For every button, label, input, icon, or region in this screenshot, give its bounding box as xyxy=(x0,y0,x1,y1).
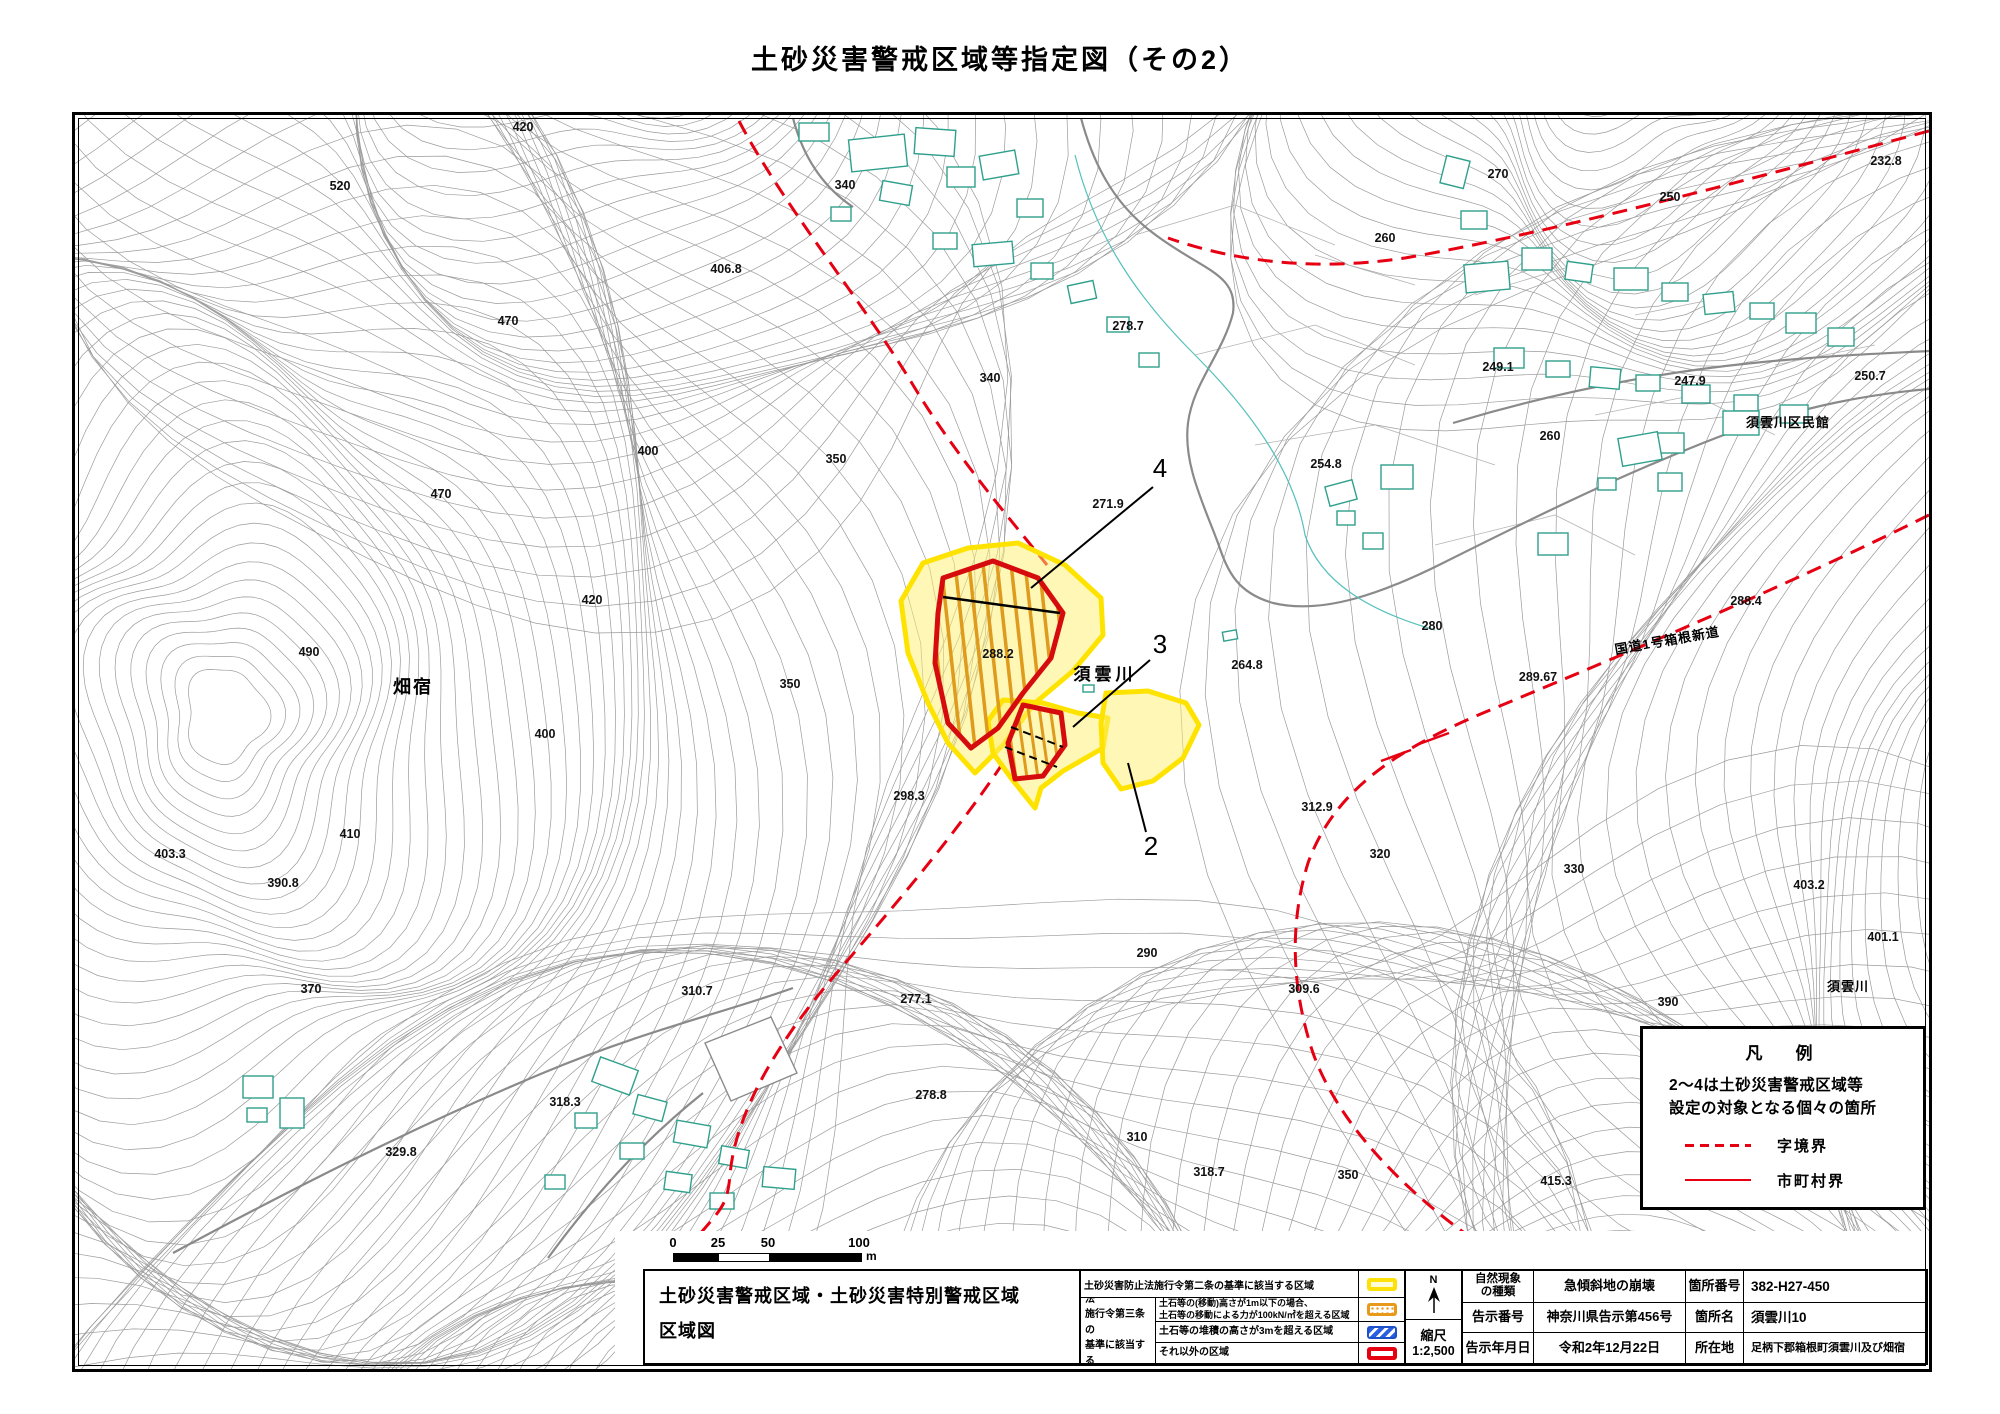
zone-legend-row4-label: それ以外の区域 xyxy=(1155,1342,1358,1363)
elevation-label: 330 xyxy=(1564,862,1585,876)
info-header-site-name: 箇所名 xyxy=(1685,1302,1743,1333)
elevation-label: 232.8 xyxy=(1870,154,1901,168)
elevation-label: 329.8 xyxy=(385,1145,416,1159)
info-value-phenomenon: 急傾斜地の崩壊 xyxy=(1533,1271,1685,1302)
map-legend-title: 凡 例 xyxy=(1643,1039,1923,1064)
scalebar-segment xyxy=(719,1254,769,1261)
zone-legend-group-label: 土砂災害防止法 施行令第三条の 基準に該当する 区域 xyxy=(1081,1297,1155,1363)
elevation-label: 320 xyxy=(1370,847,1391,861)
elevation-label: 250.7 xyxy=(1854,369,1885,383)
orange-hatch-swatch xyxy=(1367,1303,1397,1316)
elevation-label: 250 xyxy=(1660,190,1681,204)
elevation-label: 288.4 xyxy=(1730,594,1761,608)
compass-label: N xyxy=(1430,1275,1438,1286)
zone-legend-row1-label: 土砂災害防止法施行令第二条の基準に該当する区域 xyxy=(1081,1271,1358,1297)
place-label: 須雲川区民館 xyxy=(1745,415,1830,430)
scale-value: 1:2,500 xyxy=(1412,1344,1454,1358)
sheet-title-line1: 土砂災害警戒区域・土砂災害特別警戒区域 xyxy=(659,1279,1065,1314)
elevation-label: 260 xyxy=(1540,429,1561,443)
elevation-label: 390 xyxy=(1658,995,1679,1009)
legend-item-azakyoukai: 字境界 xyxy=(1685,1135,1923,1156)
info-table: 自然現象の種類 急傾斜地の崩壊 箇所番号 382-H27-450 告示番号 神奈… xyxy=(1461,1269,1928,1365)
elevation-label: 309.6 xyxy=(1288,982,1319,996)
elevation-label: 298.3 xyxy=(893,789,924,803)
place-label: 須雲川 xyxy=(1074,665,1137,684)
yellow-zone-swatch xyxy=(1367,1278,1397,1291)
place-label: 須雲川 xyxy=(1826,979,1869,994)
north-arrow-icon xyxy=(1424,1286,1444,1316)
elevation-label: 318.3 xyxy=(549,1095,580,1109)
zone-legend-row3-swatch xyxy=(1358,1321,1404,1342)
zone-legend-row4-swatch xyxy=(1358,1342,1404,1363)
zone-legend-row2-label: 土石等の(移動)高さが1m以下の場合、 土石等の移動による力が100kN/㎡を超… xyxy=(1155,1297,1358,1321)
zone-number-label: 4 xyxy=(1153,453,1167,483)
zone-legend-row1-swatch xyxy=(1358,1271,1404,1297)
zone-number-label: 3 xyxy=(1153,629,1167,659)
elevation-label: 420 xyxy=(582,593,603,607)
elevation-label: 260 xyxy=(1375,231,1396,245)
scalebar-segment xyxy=(674,1254,719,1261)
scale-cell: 縮尺 1:2,500 xyxy=(1406,1319,1461,1363)
elevation-label: 350 xyxy=(780,677,801,691)
info-header-notice-number: 告示番号 xyxy=(1463,1302,1533,1333)
zone-legend-row3-label: 土石等の堆積の高さが3mを超える区域 xyxy=(1155,1321,1358,1342)
elevation-label: 370 xyxy=(301,982,322,996)
info-value-location: 足柄下郡箱根町須雲川及び畑宿 xyxy=(1743,1332,1926,1363)
elevation-label: 247.9 xyxy=(1674,374,1705,388)
elevation-label: 312.9 xyxy=(1301,800,1332,814)
red-outline-swatch xyxy=(1367,1347,1397,1360)
legend-item-shichosonkai: 市町村界 xyxy=(1685,1170,1923,1191)
scalebar-tick: 50 xyxy=(748,1235,788,1250)
page-title: 土砂災害警戒区域等指定図（その2） xyxy=(0,38,2000,77)
elevation-label: 277.1 xyxy=(900,992,931,1006)
elevation-label: 350 xyxy=(826,452,847,466)
elevation-label: 270 xyxy=(1488,167,1509,181)
place-label: 畑宿 xyxy=(393,676,433,697)
compass: N xyxy=(1406,1271,1461,1319)
elevation-label: 400 xyxy=(535,727,556,741)
info-value-site-name: 須雲川10 xyxy=(1743,1302,1926,1333)
scalebar-tick: 0 xyxy=(653,1235,693,1250)
elevation-label: 410 xyxy=(340,827,361,841)
elevation-label: 254.8 xyxy=(1310,457,1341,471)
elevation-label: 278.8 xyxy=(915,1088,946,1102)
elevation-label: 415.3 xyxy=(1540,1174,1571,1188)
elevation-label: 290 xyxy=(1137,946,1158,960)
elevation-label: 280 xyxy=(1422,619,1443,633)
elevation-label: 420 xyxy=(513,120,534,134)
info-header-location: 所在地 xyxy=(1685,1332,1743,1363)
info-header-notice-date: 告示年月日 xyxy=(1463,1332,1533,1363)
elevation-label: 289.67 xyxy=(1519,670,1557,684)
info-value-site-number: 382-H27-450 xyxy=(1743,1271,1926,1302)
scalebar-unit: m xyxy=(866,1249,877,1263)
elevation-label: 288.2 xyxy=(982,647,1013,661)
scalebar xyxy=(673,1253,862,1262)
elevation-label: 310.7 xyxy=(681,984,712,998)
blue-hatch-swatch xyxy=(1367,1326,1397,1339)
zone-legend-table: 土砂災害防止法施行令第二条の基準に該当する区域 土砂災害防止法 施行令第三条の … xyxy=(1079,1269,1406,1365)
compass-scale-box: N 縮尺 1:2,500 xyxy=(1404,1269,1463,1365)
elevation-label: 340 xyxy=(980,371,1001,385)
elevation-label: 350 xyxy=(1338,1168,1359,1182)
elevation-label: 310 xyxy=(1127,1130,1148,1144)
elevation-label: 403.2 xyxy=(1793,878,1824,892)
elevation-label: 470 xyxy=(431,487,452,501)
elevation-label: 264.8 xyxy=(1231,658,1262,672)
info-value-notice-date: 令和2年12月22日 xyxy=(1533,1332,1685,1363)
map-legend-note: 2～4は土砂災害警戒区域等 設定の対象となる個々の箇所 xyxy=(1669,1074,1923,1121)
elevation-label: 401.1 xyxy=(1867,930,1898,944)
zone-legend-row2-swatch xyxy=(1358,1297,1404,1321)
elevation-label: 400 xyxy=(638,444,659,458)
info-value-notice-number: 神奈川県告示第456号 xyxy=(1533,1302,1685,1333)
elevation-label: 520 xyxy=(330,179,351,193)
zone-number-label: 2 xyxy=(1144,831,1158,861)
elevation-label: 340 xyxy=(835,178,856,192)
dashed-red-line-sample xyxy=(1685,1144,1751,1147)
map-legend-box: 凡 例 2～4は土砂災害警戒区域等 設定の対象となる個々の箇所 字境界 市町村界 xyxy=(1640,1026,1926,1210)
info-header-phenomenon: 自然現象の種類 xyxy=(1463,1271,1533,1302)
elevation-label: 249.1 xyxy=(1482,360,1513,374)
scale-label: 縮尺 xyxy=(1420,1325,1446,1344)
river-line xyxy=(1075,155,1435,630)
sheet-title-line2: 区域図 xyxy=(659,1314,1065,1349)
map-frame: 432420520340406.8470278.7340400350470420… xyxy=(72,112,1932,1372)
elevation-label: 403.3 xyxy=(154,847,185,861)
info-header-site-number: 箇所番号 xyxy=(1685,1271,1743,1302)
solid-red-line-sample xyxy=(1685,1179,1751,1182)
scalebar-tick: 100 xyxy=(839,1235,879,1250)
sheet-title-box: 土砂災害警戒区域・土砂災害特別警戒区域 区域図 xyxy=(643,1269,1081,1365)
elevation-label: 318.7 xyxy=(1193,1165,1224,1179)
elevation-label: 271.9 xyxy=(1092,497,1123,511)
elevation-label: 278.7 xyxy=(1112,319,1143,333)
scalebar-segment xyxy=(769,1254,861,1261)
elevation-label: 390.8 xyxy=(267,876,298,890)
scalebar-tick: 25 xyxy=(698,1235,738,1250)
elevation-label: 490 xyxy=(299,645,320,659)
elevation-label: 406.8 xyxy=(710,262,741,276)
elevation-label: 470 xyxy=(498,314,519,328)
